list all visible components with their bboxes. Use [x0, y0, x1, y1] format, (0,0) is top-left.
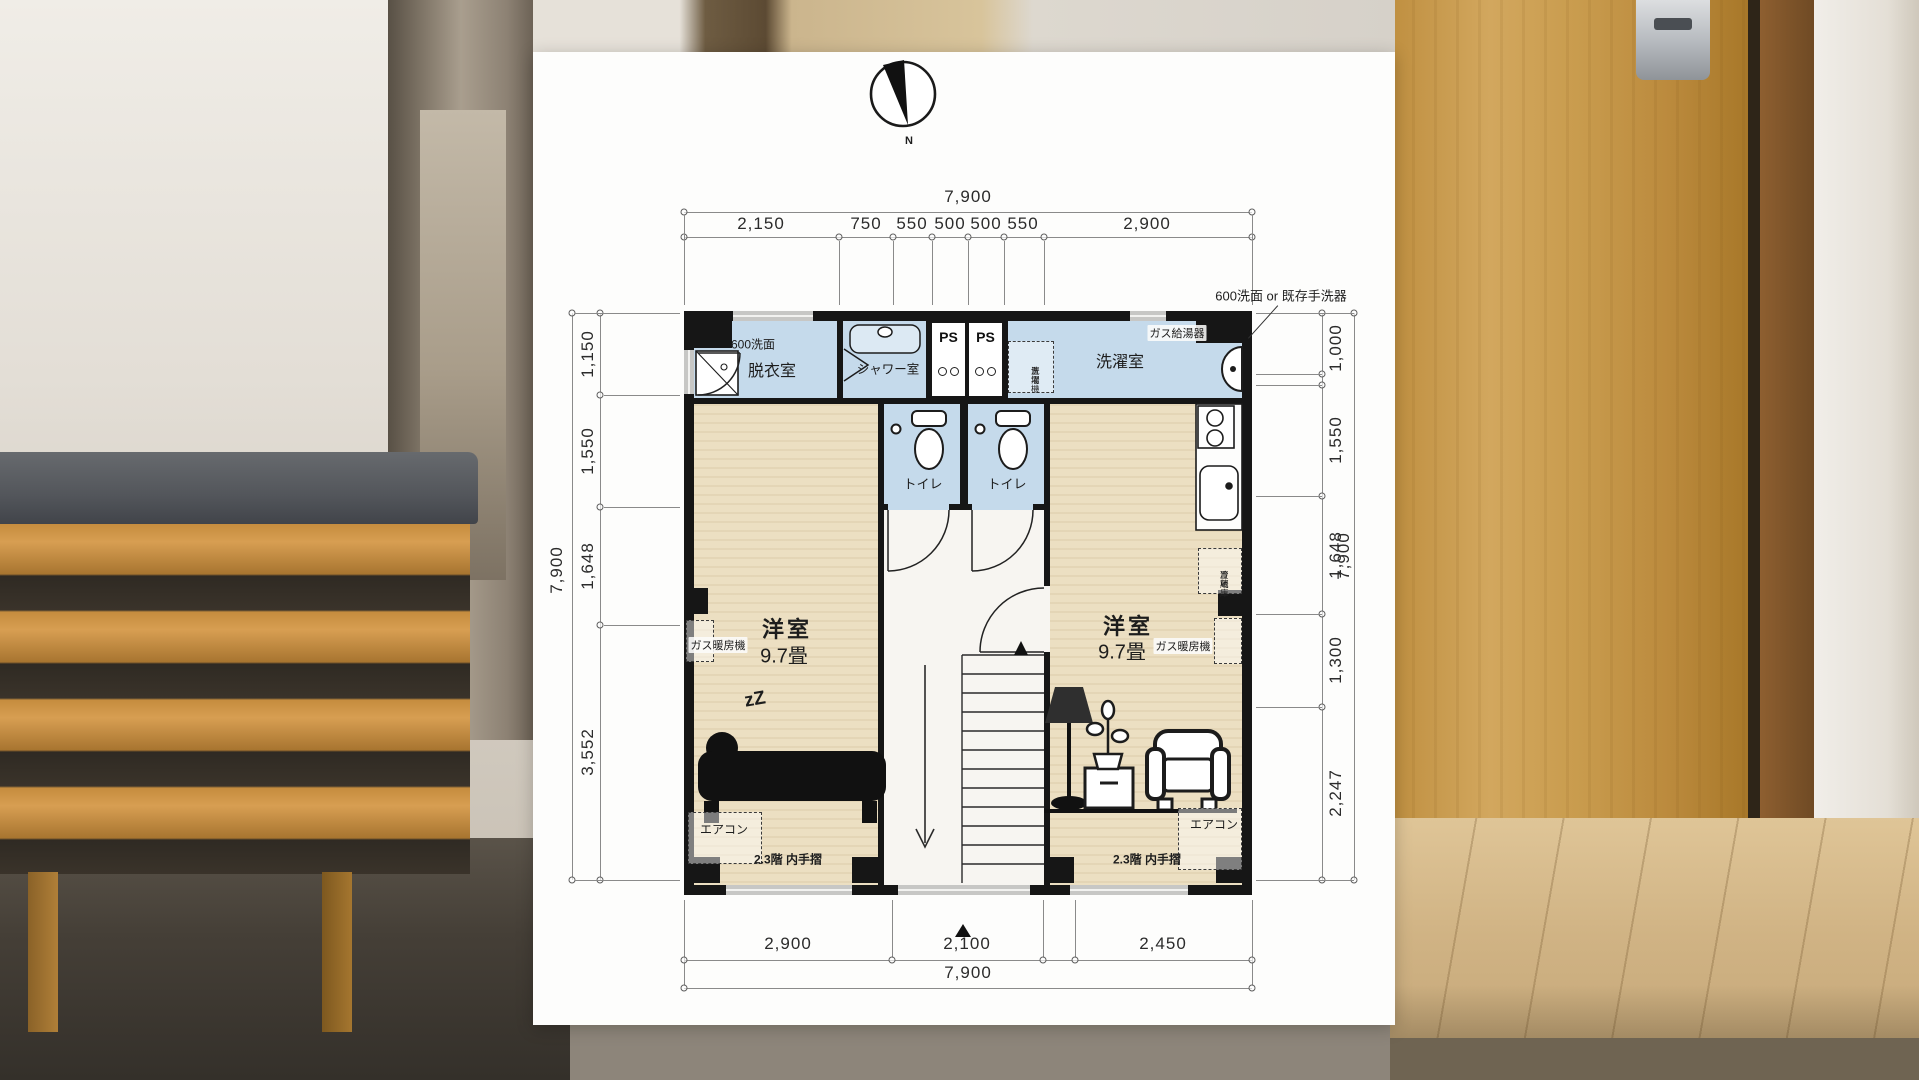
dim-top-seg: 550 — [896, 214, 927, 234]
compass-north-label: N — [905, 135, 913, 147]
dim-tick — [929, 234, 936, 241]
toilet-right-icon — [976, 411, 1031, 469]
dim-right-total: 7,900 — [1334, 532, 1354, 580]
dim-tick — [597, 392, 604, 399]
label-handrail-left: 2.3階 内手摺 — [754, 851, 822, 868]
dim-ext — [893, 241, 894, 305]
dim-top-seg: 2,150 — [737, 214, 785, 234]
dim-tick — [1041, 234, 1048, 241]
toilet-left-icon — [892, 411, 947, 469]
door-arc-toilet-left — [888, 510, 949, 571]
photo-wood-floor — [1390, 818, 1919, 1080]
dim-line — [1354, 313, 1355, 880]
dim-tick — [1040, 957, 1047, 964]
washer-place-box: 洗濯機置場 — [1008, 341, 1054, 393]
dim-bottom-total: 7,900 — [944, 963, 992, 983]
dim-ext — [684, 900, 685, 986]
dim-ext — [575, 880, 680, 881]
dim-ext — [1075, 900, 1076, 958]
dim-bottom-seg: 2,450 — [1139, 934, 1187, 954]
dim-tick — [1001, 234, 1008, 241]
dim-ext — [1252, 900, 1253, 986]
label-gas-heater-right: ガス暖房機 — [1154, 638, 1213, 654]
dim-tick — [836, 234, 843, 241]
label-toilet-left: トイレ — [903, 474, 942, 493]
dim-tick — [1249, 985, 1256, 992]
photo-bench-leg — [28, 872, 58, 1032]
screenshot-root: N 7,900 2,150 750 550 500 500 550 2,900 … — [0, 0, 1919, 1080]
photo-wooden-bench — [0, 524, 470, 874]
label-gas-water-heater: ガス給湯器 — [1148, 325, 1207, 341]
dim-bottom-seg: 2,100 — [943, 934, 991, 954]
dim-ext — [1256, 880, 1354, 881]
armchair-icon — [1147, 731, 1229, 810]
label-west-left-size: 9.7畳 — [760, 640, 808, 669]
dim-tick — [1072, 957, 1079, 964]
dim-right-seg: 1,550 — [1326, 416, 1346, 464]
plan-lineart — [684, 311, 1252, 895]
dim-left-seg: 1,150 — [578, 330, 598, 378]
door-arc-stair-top — [980, 588, 1044, 652]
photo-door-hinge-slot — [1654, 18, 1692, 30]
stair-up-marker — [1014, 641, 1028, 655]
dim-ext — [1256, 614, 1322, 615]
dim-line — [1322, 313, 1323, 880]
label-gas-heater-left: ガス暖房機 — [689, 637, 748, 653]
dim-line — [684, 960, 1252, 961]
dim-tick — [1249, 957, 1256, 964]
dim-top-seg: 500 — [934, 214, 965, 234]
photo-door-hinge-hardware — [1636, 0, 1710, 80]
dim-bottom-seg: 2,900 — [764, 934, 812, 954]
dim-tick — [889, 957, 896, 964]
label-sink600: 600洗面 — [731, 336, 775, 353]
dim-top-seg: 550 — [1007, 214, 1038, 234]
dim-tick — [890, 234, 897, 241]
dim-ext — [968, 241, 969, 305]
stairs-down-arrow — [916, 665, 934, 847]
dim-top-seg: 750 — [850, 214, 881, 234]
plant-cabinet-icon — [1085, 701, 1133, 808]
dim-ext — [1043, 900, 1044, 958]
stairs-icon — [962, 655, 1044, 883]
sink-icon — [696, 351, 738, 395]
dim-line — [684, 212, 1252, 213]
dim-ext — [1256, 707, 1322, 708]
gas-heater-right-box — [1214, 618, 1242, 664]
dim-tick — [681, 985, 688, 992]
dim-line — [684, 988, 1252, 989]
label-sink-note: 600洗面 or 既存手洗器 — [1215, 286, 1346, 305]
dim-ext — [892, 900, 893, 958]
photo-bench-leg — [322, 872, 352, 1032]
photo-step-edge — [1390, 1038, 1919, 1080]
dim-ext — [1004, 241, 1005, 305]
door-arc-toilet-right — [972, 510, 1033, 571]
dim-top-seg: 2,900 — [1123, 214, 1171, 234]
dim-left-total: 7,900 — [547, 546, 567, 594]
photo-door-gap — [1748, 0, 1760, 1012]
dim-tick — [965, 234, 972, 241]
dim-top-total: 7,900 — [944, 187, 992, 207]
dim-ext — [1256, 496, 1322, 497]
photo-bench-cushion — [0, 452, 478, 524]
dim-ext — [1256, 374, 1322, 375]
dim-tick — [597, 504, 604, 511]
label-aircon-left: エアコン — [700, 821, 748, 838]
photo-hallway-doorway — [388, 0, 540, 740]
bed-sleeper-icon — [698, 732, 886, 823]
dim-ext — [1044, 241, 1045, 305]
kitchen-counter-icon — [1196, 404, 1242, 530]
label-toilet-right: トイレ — [987, 474, 1026, 493]
dim-ext — [839, 241, 840, 305]
label-sleep-zz: zZ — [743, 687, 768, 712]
photo-top-strip — [533, 0, 1395, 56]
dim-tick — [597, 622, 604, 629]
dim-ext — [604, 395, 680, 396]
dim-ext — [1256, 385, 1322, 386]
dim-ext — [604, 507, 680, 508]
photo-wooden-door — [1390, 0, 1748, 1012]
dim-ext — [684, 215, 685, 305]
hand-basin-icon — [1222, 347, 1242, 391]
photo-hallway-room — [420, 110, 506, 580]
dim-right-seg: 1,000 — [1326, 324, 1346, 372]
photo-floor-shadow — [1390, 985, 1919, 1080]
dim-ext — [604, 625, 680, 626]
dim-line — [572, 313, 573, 880]
label-aircon-right: エアコン — [1190, 816, 1238, 833]
photo-door-frame — [1760, 0, 1814, 1012]
photo-left-wall — [0, 0, 540, 1080]
dim-top-seg: 500 — [970, 214, 1001, 234]
dim-tick — [681, 957, 688, 964]
dim-left-seg: 1,550 — [578, 427, 598, 475]
label-handrail-right: 2.3階 内手摺 — [1113, 851, 1181, 868]
dim-right-seg: 2,247 — [1326, 769, 1346, 817]
dim-left-seg: 1,648 — [578, 542, 598, 590]
photo-right-wall — [1814, 0, 1919, 900]
label-laundry: 洗濯室 — [1096, 348, 1144, 372]
label-west-right-size: 9.7畳 — [1098, 636, 1146, 665]
dim-ext — [932, 241, 933, 305]
fridge-place-box: 冷蔵庫置場 — [1198, 548, 1242, 594]
dim-ext — [575, 313, 680, 314]
dim-left-seg: 3,552 — [578, 728, 598, 776]
dim-right-seg: 1,300 — [1326, 636, 1346, 684]
label-dressing: 脱衣室 — [748, 357, 796, 381]
photo-dark-carpet-floor — [0, 838, 570, 1080]
compass-north-icon — [866, 56, 940, 134]
label-shower: シャワー室 — [857, 359, 920, 378]
